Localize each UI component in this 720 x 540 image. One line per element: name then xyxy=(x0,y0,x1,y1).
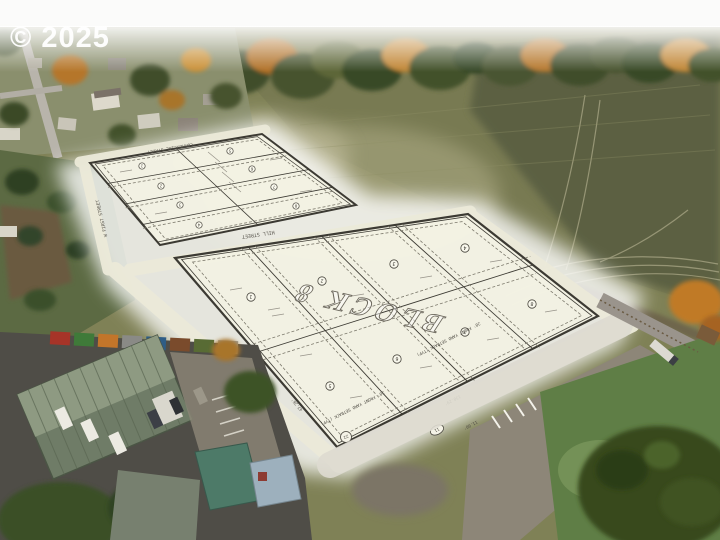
lot-number: 2 xyxy=(318,277,326,285)
lot-number: 1 xyxy=(139,163,145,169)
lot-number: 4 xyxy=(196,222,202,228)
yard-tree xyxy=(224,371,276,413)
aerial-photo-stage: 1 2 3 4 5 6 7 8 COMMERCIAL STREET W FIRS… xyxy=(0,0,720,540)
lot-number: 7 xyxy=(271,184,277,190)
lot-number: 6 xyxy=(249,166,255,172)
aerial-photo: 1 2 3 4 5 6 7 8 COMMERCIAL STREET W FIRS… xyxy=(0,0,720,540)
lot-number: 5 xyxy=(326,382,334,390)
lot-number: 1 xyxy=(247,293,255,301)
metal-building xyxy=(110,470,200,540)
svg-text:6: 6 xyxy=(395,355,399,361)
svg-text:8: 8 xyxy=(530,300,534,306)
lot-number: 2 xyxy=(158,183,164,189)
lot-number: 8 xyxy=(293,203,299,209)
svg-text:5: 5 xyxy=(328,382,332,388)
lot-number: 6 xyxy=(393,355,401,363)
copyright-watermark: © 2025 xyxy=(10,22,110,55)
lot-number: 3 xyxy=(390,260,398,268)
blue-roof-building xyxy=(250,455,301,507)
lot-number: 3 xyxy=(177,202,183,208)
lot-number: 5 xyxy=(227,148,233,154)
svg-text:4: 4 xyxy=(463,244,467,250)
white-trailer xyxy=(0,226,17,237)
dirt-area xyxy=(352,464,448,516)
lot-number: 8 xyxy=(528,300,536,308)
autumn-tree xyxy=(212,339,240,361)
svg-text:3: 3 xyxy=(392,260,396,266)
svg-text:2: 2 xyxy=(320,277,324,283)
red-equipment xyxy=(258,472,267,481)
svg-text:1: 1 xyxy=(249,293,253,299)
lot-number: 4 xyxy=(461,244,469,252)
